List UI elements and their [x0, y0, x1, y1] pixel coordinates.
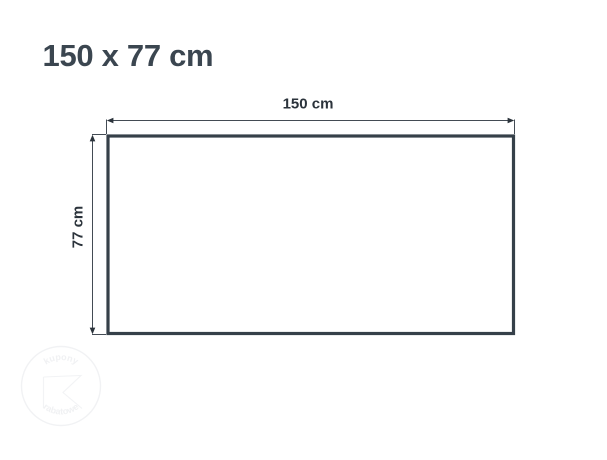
- svg-text:kupony: kupony: [42, 352, 80, 367]
- svg-text:rabatowe: rabatowe: [42, 401, 81, 416]
- svg-text:77 cm: 77 cm: [70, 206, 87, 249]
- svg-text:150 x 77 cm: 150 x 77 cm: [43, 38, 214, 73]
- svg-text:150 cm: 150 cm: [283, 96, 334, 113]
